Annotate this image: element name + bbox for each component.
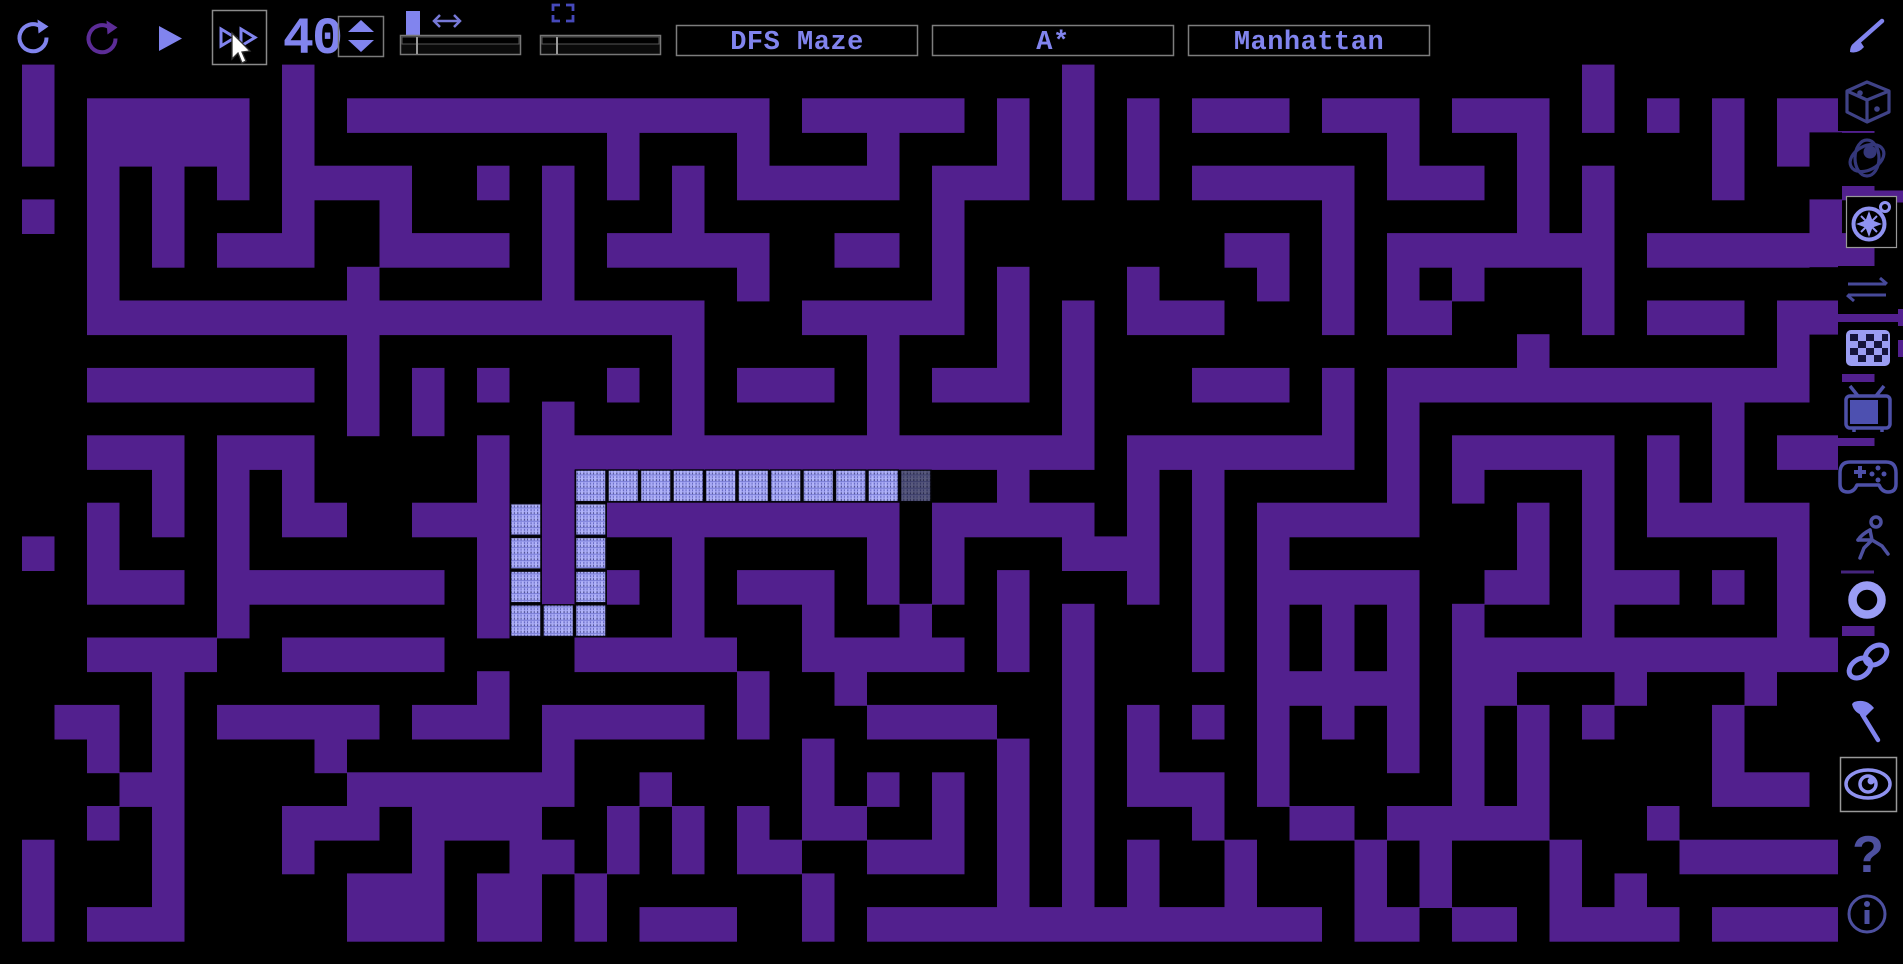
svg-text:Manhattan: Manhattan	[1234, 28, 1384, 58]
svg-text:40: 40	[283, 10, 341, 69]
svg-text:DFS Maze: DFS Maze	[730, 28, 864, 58]
svg-text:?: ?	[1852, 826, 1884, 884]
svg-text:A*: A*	[1036, 28, 1069, 58]
